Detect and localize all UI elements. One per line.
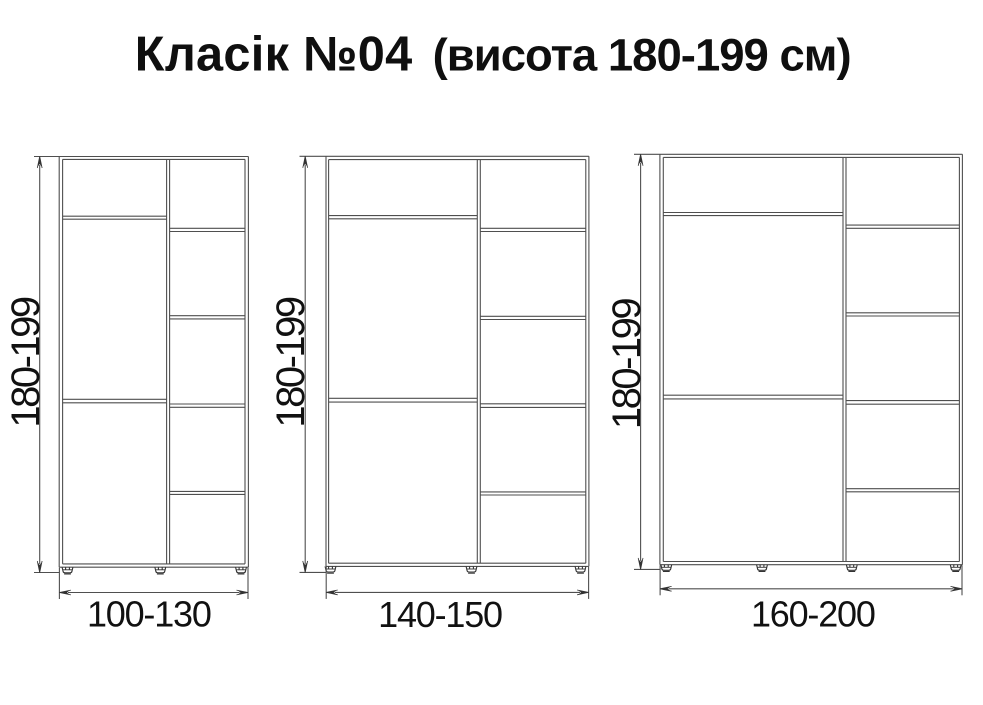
svg-text:160-200: 160-200 (751, 594, 875, 635)
svg-text:180-199: 180-199 (269, 297, 313, 428)
svg-text:Класік №04: Класік №04 (135, 27, 413, 81)
svg-text:140-150: 140-150 (378, 594, 502, 635)
svg-text:(висота 180-199 см): (висота 180-199 см) (433, 30, 851, 81)
svg-text:100-130: 100-130 (87, 594, 211, 635)
svg-text:180-199: 180-199 (4, 297, 48, 428)
svg-text:180-199: 180-199 (605, 299, 649, 430)
